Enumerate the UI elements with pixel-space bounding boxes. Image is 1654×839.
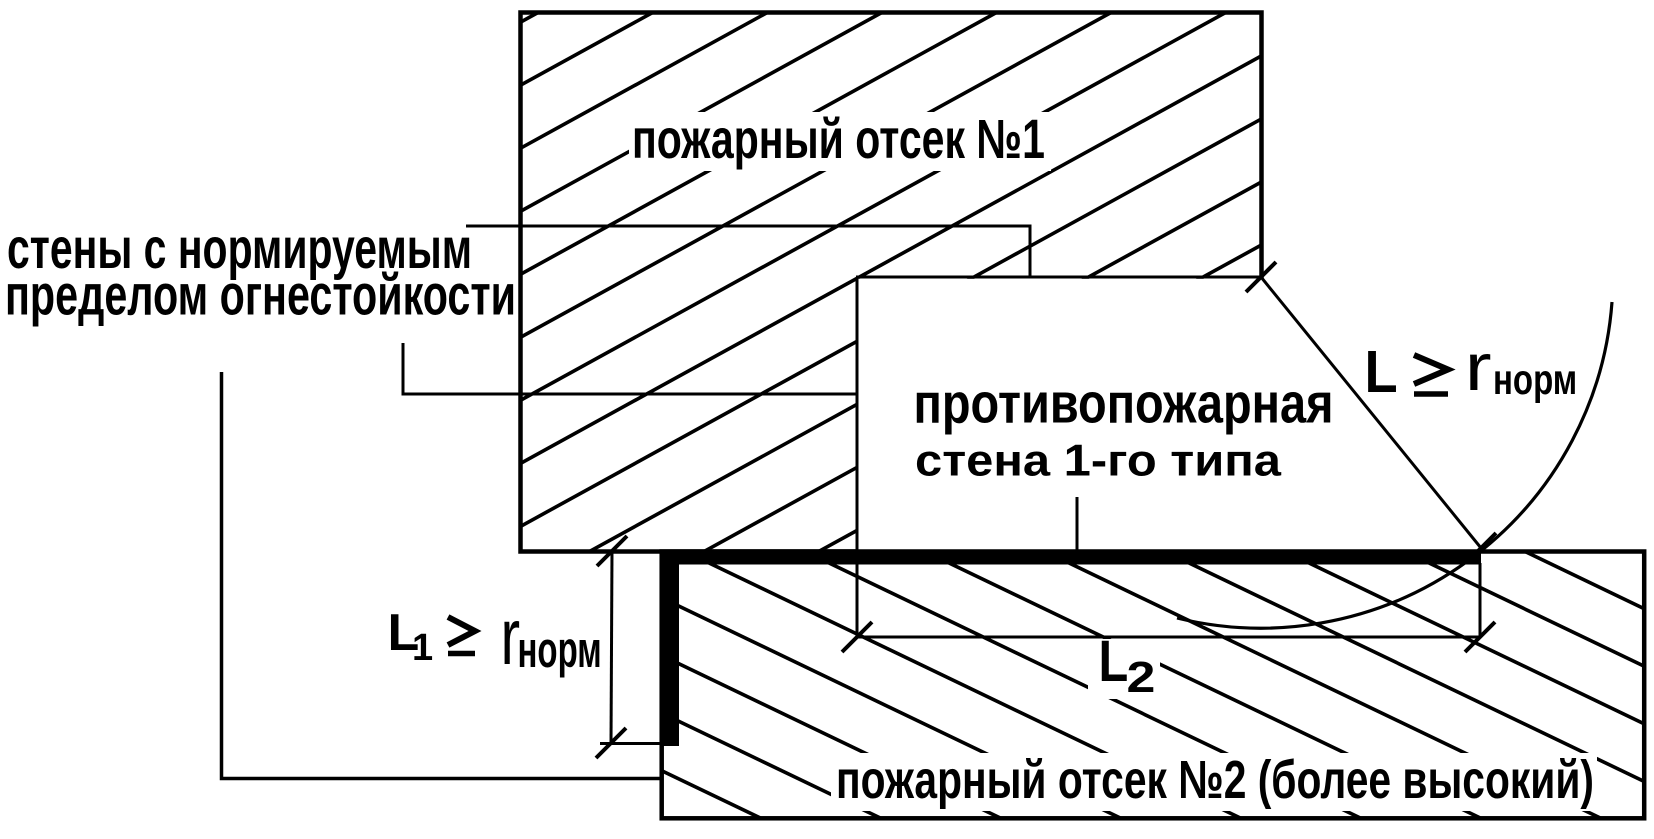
svg-text:r: r — [1465, 330, 1492, 405]
svg-text:норм: норм — [1493, 356, 1577, 404]
svg-text:2: 2 — [1127, 653, 1156, 702]
svg-text:норм: норм — [518, 622, 602, 679]
svg-text:стена 1-го типа: стена 1-го типа — [915, 435, 1281, 485]
svg-text:1: 1 — [412, 627, 433, 669]
svg-text:L: L — [1099, 630, 1129, 694]
svg-text:пределом огнестойкости: пределом огнестойкости — [5, 263, 516, 327]
svg-text:противопожарная: противопожарная — [914, 372, 1334, 436]
svg-text:L: L — [1365, 340, 1398, 406]
svg-text:пожарный отсек №2 (более высок: пожарный отсек №2 (более высокий) — [836, 749, 1594, 809]
svg-text:пожарный отсек №1: пожарный отсек №1 — [632, 108, 1045, 170]
